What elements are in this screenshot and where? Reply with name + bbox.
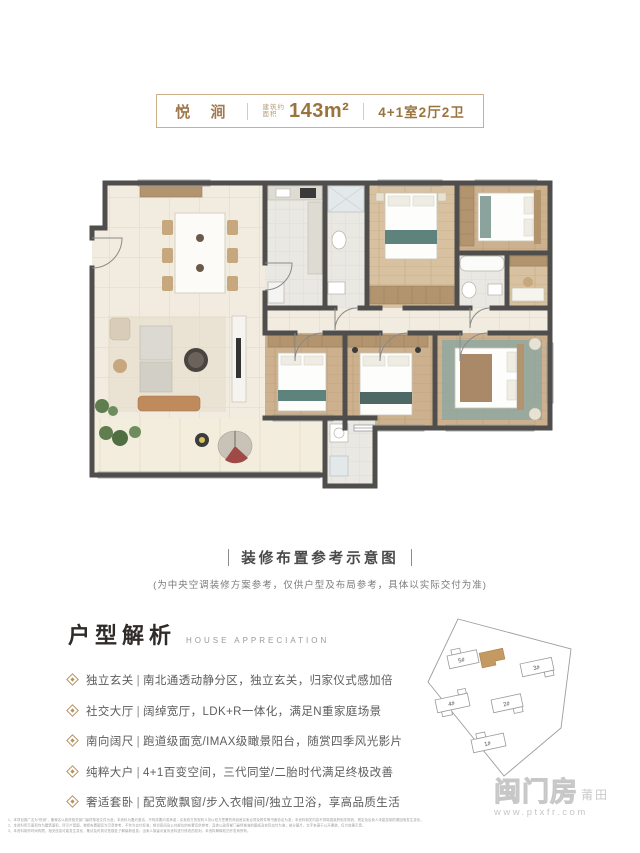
analysis-section: 户型解析 HOUSE APPRECIATION 独立玄关|南北通透动静分区，独立… <box>68 618 438 825</box>
caption-note: (为中央空调装修方案参考，仅供户型及布局参考，具体以实际交付为准) <box>0 577 640 591</box>
area-prefix: 建筑约 面积 <box>262 104 285 118</box>
caption-right-bar <box>411 549 412 566</box>
bullet-separator: | <box>134 736 143 748</box>
caption-left-bar <box>228 549 229 566</box>
watermark: 闽门房 莆田 www.ptxfr.com <box>494 779 640 818</box>
bullet-tag: 独立玄关 <box>86 675 134 687</box>
feature-bullet: 南向阔尺|跑道级面宽/IMAX级瞰景阳台，随赏四季风光影片 <box>68 733 438 749</box>
disclaimer-line: 1、本项目推广名为“悦涧”，备案名以政府相关部门最终核准文件为准；本资料为要约邀… <box>8 818 638 822</box>
plan-caption: 装修布置参考示意图 (为中央空调装修方案参考，仅供户型及布局参考，具体以实际交付… <box>0 547 640 591</box>
bullet-separator: | <box>134 675 143 687</box>
bullet-tag: 社交大厅 <box>86 706 134 718</box>
bullet-desc: 配宽敞飘窗/步入衣帽间/独立卫浴，享高品质生活 <box>143 797 400 809</box>
bullet-desc: 阔绰宽厅，LDK+R一体化，满足N重家庭场景 <box>143 706 382 718</box>
area-value: 143m² <box>289 100 349 123</box>
disclaimer-line: 2、本资料所示面积均为建筑面积，所示户型图、装修布置图仅为示意参考，不作为交付标… <box>8 823 638 827</box>
diamond-bullet-icon <box>66 734 79 747</box>
bullet-tag: 南向阔尺 <box>86 736 134 748</box>
watermark-url: www.ptxfr.com <box>494 807 640 818</box>
feature-bullet: 独立玄关|南北通透动静分区，独立玄关，归家仪式感加倍 <box>68 672 438 688</box>
diamond-bullet-icon <box>66 765 79 778</box>
watermark-logo: 闽门房 <box>494 779 578 805</box>
feature-bullet: 纯粹大户|4+1百变空间，三代同堂/二胎时代满足终极改善 <box>68 764 438 780</box>
bullet-desc: 南北通透动静分区，独立玄关，归家仪式感加倍 <box>143 675 393 687</box>
site-plan: 5# 3# 2# 4# 1# <box>425 616 577 782</box>
diamond-bullet-icon <box>66 704 79 717</box>
bullet-separator: | <box>134 797 143 809</box>
caption-title: 装修布置参考示意图 <box>241 547 399 568</box>
feature-bullet: 奢适套卧|配宽敞飘窗/步入衣帽间/独立卫浴，享高品质生活 <box>68 794 438 810</box>
area-prefix-bottom: 面积 <box>262 111 285 118</box>
analysis-subtitle: HOUSE APPRECIATION <box>186 636 329 645</box>
header-divider <box>363 103 364 120</box>
header-box: 悦 涧 建筑约 面积 143m² 4+1室2厅2卫 <box>156 94 483 128</box>
watermark-region: 莆田 <box>581 786 609 805</box>
unit-layout: 4+1室2厅2卫 <box>378 101 464 121</box>
diamond-bullet-icon <box>66 795 79 808</box>
floor-plan <box>80 168 560 540</box>
bullet-tag: 奢适套卧 <box>86 797 134 809</box>
feature-bullets: 独立玄关|南北通透动静分区，独立玄关，归家仪式感加倍 社交大厅|阔绰宽厅，LDK… <box>68 672 438 810</box>
bullet-desc: 4+1百变空间，三代同堂/二胎时代满足终极改善 <box>143 767 393 779</box>
area-prefix-top: 建筑约 <box>262 104 285 111</box>
area-group: 建筑约 面积 143m² <box>262 100 349 123</box>
feature-bullet: 社交大厅|阔绰宽厅，LDK+R一体化，满足N重家庭场景 <box>68 703 438 719</box>
disclaimer-line: 3、本资料制作时间有限，相关信息可能发生变化，敬请及时到访售楼处了解最新信息；出… <box>8 829 638 833</box>
bullet-desc: 跑道级面宽/IMAX级瞰景阳台，随赏四季风光影片 <box>143 736 402 748</box>
flyer-page: 悦 涧 建筑约 面积 143m² 4+1室2厅2卫 <box>0 0 640 853</box>
project-name: 悦 涧 <box>175 101 233 122</box>
diamond-bullet-icon <box>66 673 79 686</box>
bullet-tag: 纯粹大户 <box>86 767 134 779</box>
bullet-separator: | <box>134 706 143 718</box>
header-divider <box>247 103 248 120</box>
disclaimer: 1、本项目推广名为“悦涧”，备案名以政府相关部门最终核准文件为准；本资料为要约邀… <box>8 818 638 834</box>
analysis-title: 户型解析 <box>68 618 176 650</box>
header: 悦 涧 建筑约 面积 143m² 4+1室2厅2卫 <box>0 94 640 128</box>
bullet-separator: | <box>134 767 143 779</box>
